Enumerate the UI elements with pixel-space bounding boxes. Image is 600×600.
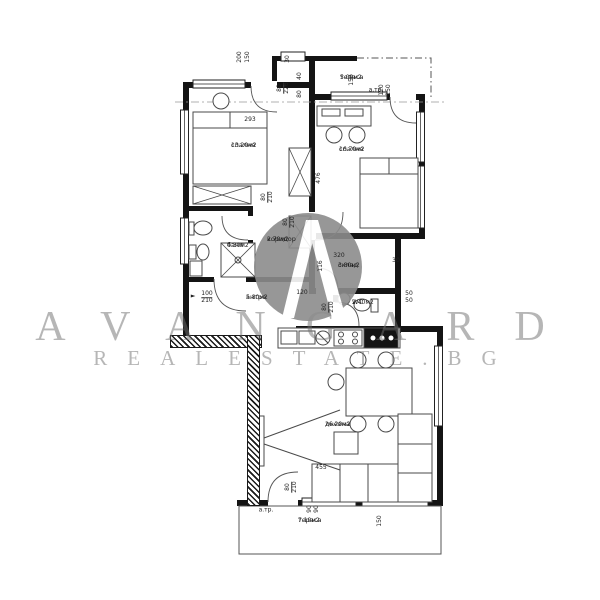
dimension-label: 150 [245, 51, 251, 62]
dimension-label: 30 [285, 55, 291, 63]
dimension-label: 80210 [322, 301, 336, 312]
dimension-label: 50 [405, 298, 413, 304]
dimension-label: 100210 [201, 291, 212, 305]
dimension-label: 90 [314, 505, 320, 513]
dimension-label: 320 [333, 253, 344, 259]
dimension-label: 80210 [283, 216, 297, 227]
annotation-label: а.тр. [369, 87, 384, 94]
dimension-label: 40 [297, 72, 303, 80]
dimension-label: 30 [392, 258, 400, 264]
annotation-label: ► [191, 293, 196, 300]
dimension-label: 120 [296, 290, 307, 296]
dimension-label: 293 [244, 117, 255, 123]
dimension-label: 80210 [261, 191, 275, 202]
dimension-label: 150 [349, 74, 355, 85]
dimension-label: 150 [386, 84, 392, 95]
dimension-label: 80210 [285, 481, 299, 492]
dimension-label: 80 [297, 90, 303, 98]
dimension-label: 150 [377, 515, 383, 526]
dimension-label: 116 [318, 260, 324, 271]
dimension-label: 476 [316, 172, 322, 183]
dimension-label: 455 [315, 465, 326, 471]
floorplan-canvas: AVANGARD REALESTATE.BG тераса5.00м2спалн… [0, 0, 600, 600]
dimension-label: 80226 [277, 82, 291, 93]
annotation-label: а.тр. [259, 507, 274, 514]
dimension-label: 200 [237, 51, 243, 62]
